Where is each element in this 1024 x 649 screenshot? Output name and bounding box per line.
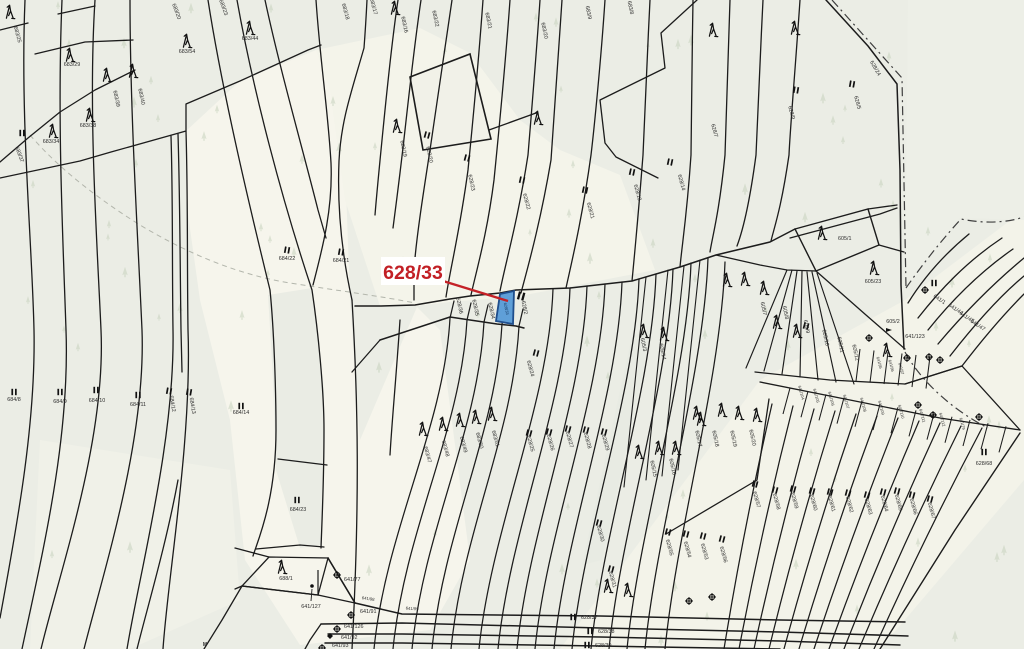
svg-text:605/1: 605/1	[838, 236, 852, 242]
svg-text:684/23: 684/23	[290, 507, 307, 513]
svg-text:684/11: 684/11	[130, 402, 146, 408]
svg-text:684/14: 684/14	[233, 410, 250, 416]
svg-text:641/99: 641/99	[406, 606, 420, 612]
svg-text:683/29: 683/29	[64, 62, 81, 68]
svg-text:641/91: 641/91	[360, 609, 377, 615]
svg-text:605/23: 605/23	[865, 279, 882, 285]
svg-text:683/38: 683/38	[80, 123, 97, 129]
svg-text:641/92: 641/92	[341, 635, 358, 641]
svg-text:688/1: 688/1	[279, 576, 293, 582]
svg-text:641/77: 641/77	[344, 577, 361, 583]
svg-text:684/10: 684/10	[89, 398, 106, 404]
svg-text:641/126: 641/126	[344, 624, 364, 630]
svg-text:628/39: 628/39	[595, 643, 612, 649]
svg-text:683/54: 683/54	[179, 49, 196, 55]
svg-text:641/93: 641/93	[332, 643, 349, 649]
svg-text:628/37: 628/37	[581, 615, 598, 621]
svg-text:683/34: 683/34	[43, 139, 60, 145]
svg-text:628/33: 628/33	[383, 262, 443, 284]
svg-text:684/21: 684/21	[333, 258, 350, 264]
svg-text:683/44: 683/44	[242, 36, 259, 42]
svg-text:684/8: 684/8	[7, 397, 21, 403]
svg-text:641/123: 641/123	[905, 334, 925, 340]
svg-text:684/22: 684/22	[279, 256, 296, 262]
svg-text:641/127: 641/127	[301, 604, 321, 610]
svg-text:628/68: 628/68	[976, 461, 993, 467]
svg-text:M: M	[203, 642, 207, 648]
svg-text:628/38: 628/38	[598, 629, 615, 635]
svg-text:684/9: 684/9	[53, 399, 67, 405]
svg-text:605/2: 605/2	[886, 319, 900, 325]
